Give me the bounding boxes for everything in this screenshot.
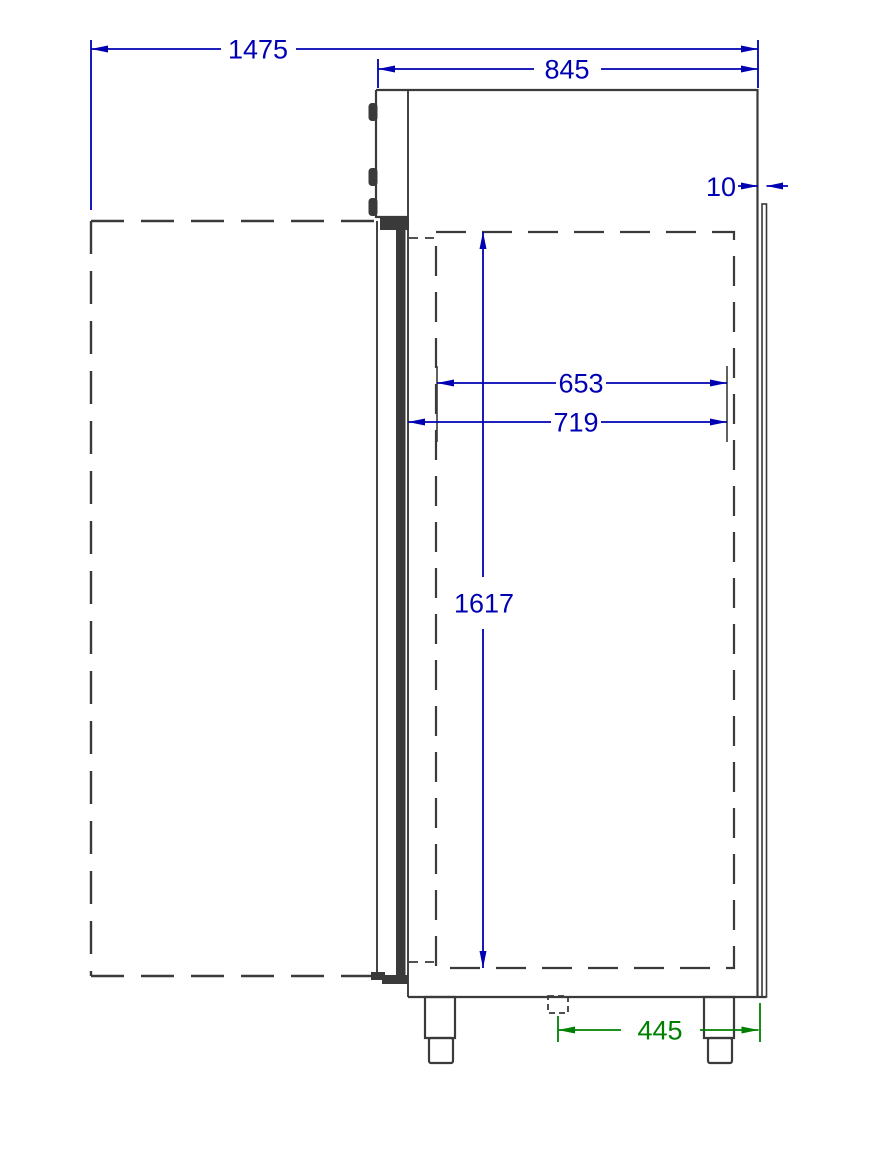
arrowhead-right <box>741 66 758 73</box>
dimension-1475: 1475 <box>91 35 758 211</box>
door-panel <box>371 218 409 984</box>
dimension-845: 845 <box>378 40 758 88</box>
dimension-719: 719 <box>408 408 727 438</box>
arrowhead-left <box>378 66 395 73</box>
dimension-label: 10 <box>706 172 736 202</box>
dimension-445: 445 <box>558 1003 760 1046</box>
left-leg-upper <box>425 997 455 1038</box>
right-leg-foot <box>708 1038 732 1063</box>
door-bottom-bracket <box>382 975 408 984</box>
drain-dashed-outline <box>548 996 568 1013</box>
dimension-label: 1475 <box>228 35 288 65</box>
dimension-1617: 1617 <box>454 232 514 968</box>
arrowhead-right <box>741 46 758 53</box>
dimension-label: 845 <box>544 55 589 85</box>
door-slab <box>396 221 406 979</box>
left-leg-foot <box>429 1038 453 1063</box>
arrowhead-right-pointing <box>741 183 758 190</box>
door-open-dashed-outline <box>91 221 376 976</box>
dimension-label: 719 <box>553 408 598 438</box>
arrowhead-right <box>710 380 727 387</box>
hinge-bump <box>369 198 378 216</box>
dimension-label: 653 <box>558 369 603 399</box>
hinge-bump <box>369 103 378 121</box>
rear-spacer-panel <box>762 204 767 997</box>
arrowhead-left <box>408 419 425 426</box>
door-bottom-step <box>371 972 385 980</box>
hinge-bump <box>369 168 378 186</box>
dimension-label: 1617 <box>454 589 514 619</box>
right-leg-upper <box>704 997 734 1038</box>
arrowhead-left-pointing <box>767 183 784 190</box>
cabinet-body <box>376 89 766 997</box>
arrowhead-left <box>91 46 108 53</box>
hinge-column <box>369 90 409 218</box>
dimension-10: 10 <box>706 172 788 202</box>
cad-drawing: 1475 845 10 653 719 1617 <box>0 0 884 1160</box>
arrowhead-up <box>480 232 487 249</box>
left-leg <box>425 997 455 1063</box>
arrowhead-right <box>742 1027 759 1034</box>
technical-drawing-canvas: 1475 845 10 653 719 1617 <box>0 0 884 1160</box>
arrowhead-right <box>710 419 727 426</box>
arrowhead-down <box>480 951 487 968</box>
dimension-label: 445 <box>637 1016 682 1046</box>
arrowhead-left <box>437 380 454 387</box>
arrowhead-left <box>558 1027 575 1034</box>
